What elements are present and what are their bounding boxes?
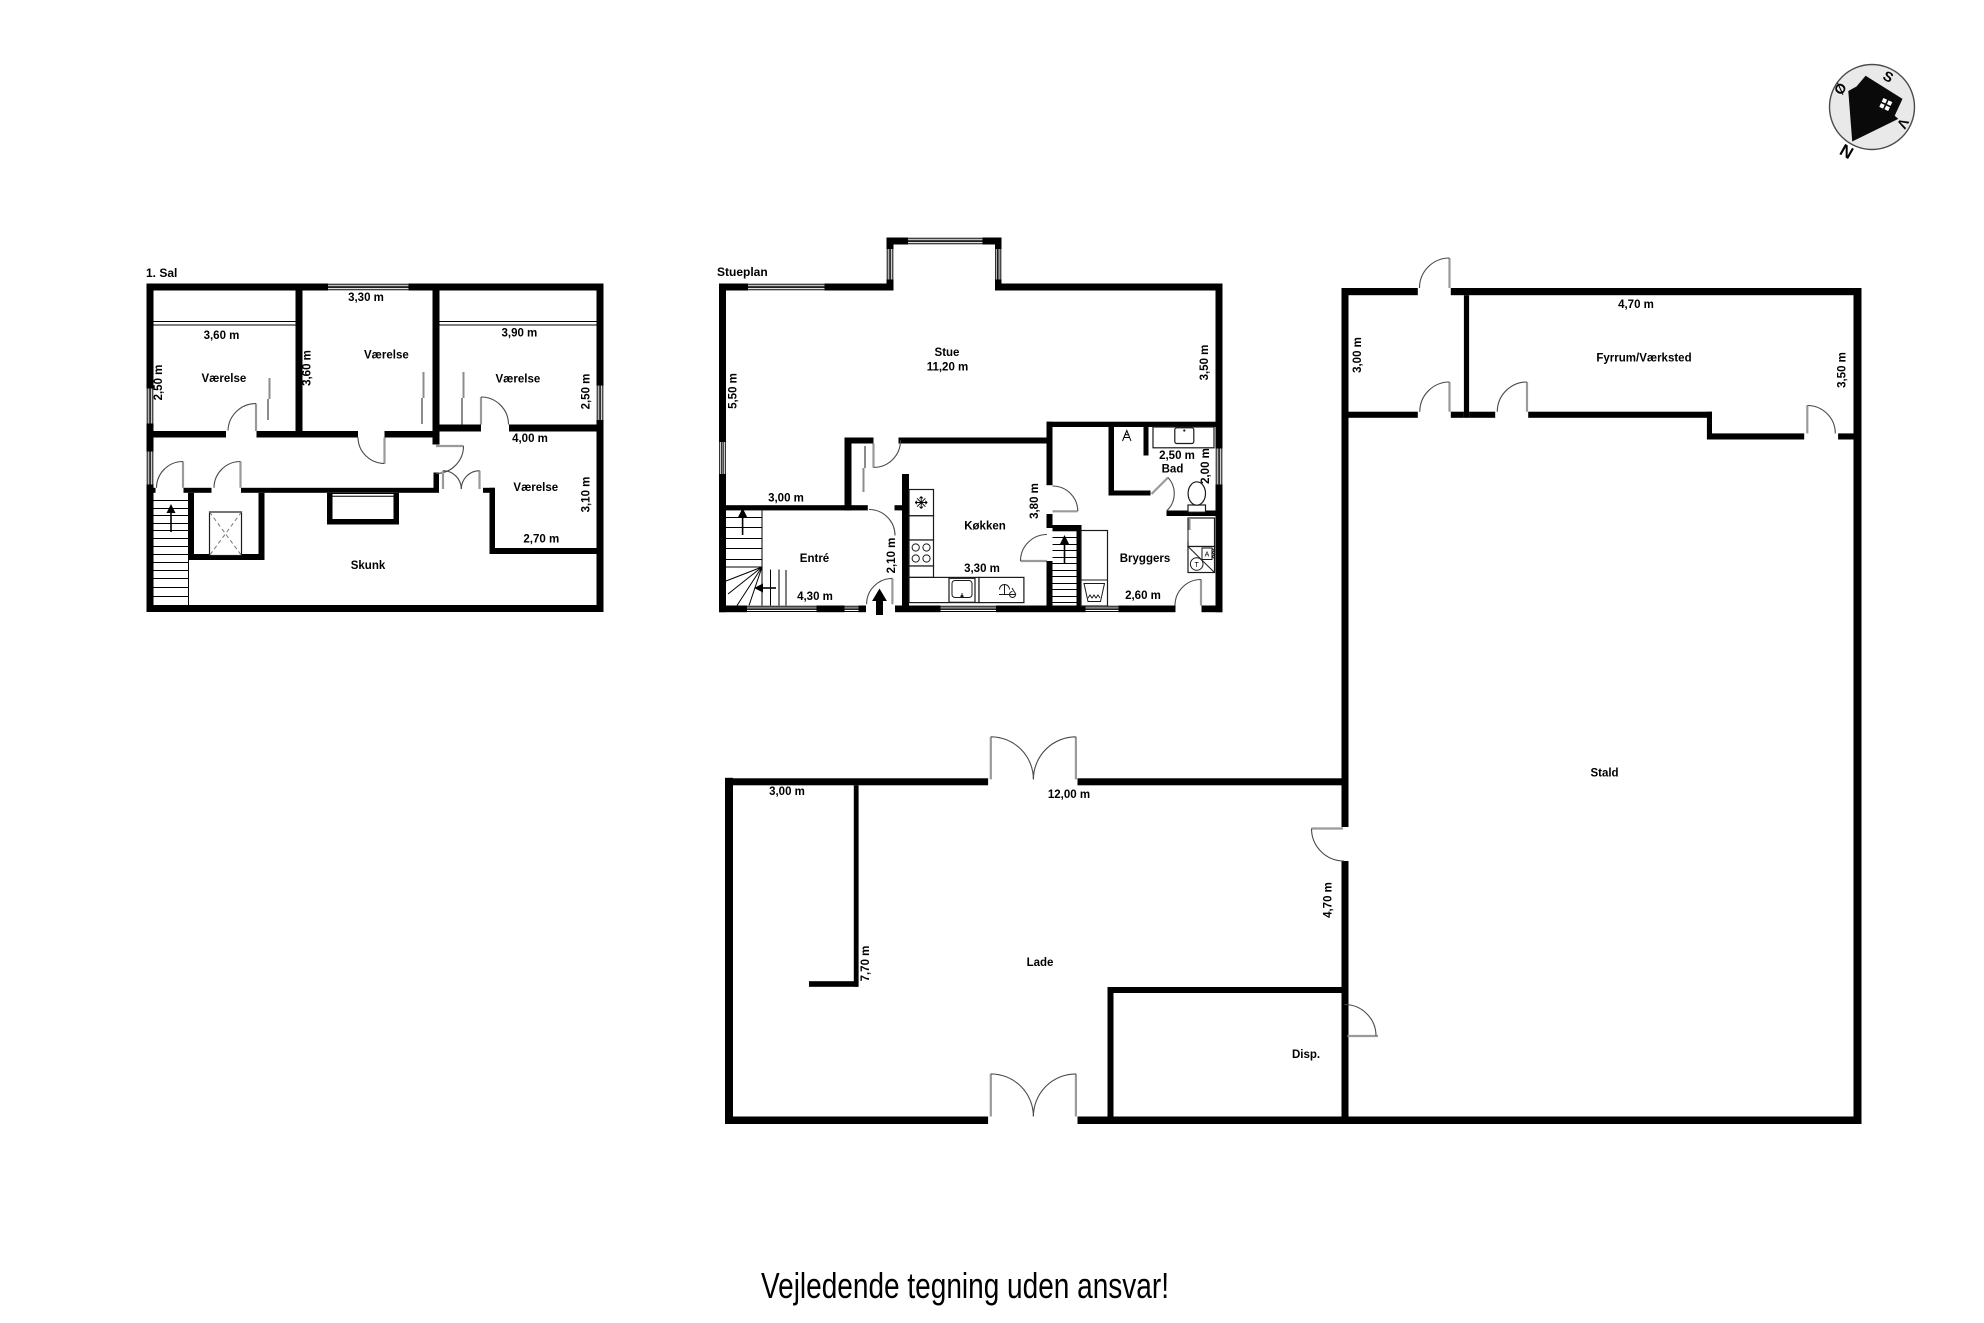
- svg-text:1. Sal: 1. Sal: [146, 266, 177, 280]
- svg-text:Bryggers: Bryggers: [1120, 553, 1171, 565]
- svg-text:T: T: [1195, 562, 1200, 569]
- svg-text:Disp.: Disp.: [1292, 1049, 1320, 1061]
- svg-text:2,70 m: 2,70 m: [523, 534, 559, 546]
- svg-text:3,00 m: 3,00 m: [1352, 337, 1364, 373]
- svg-text:Vejledende tegning uden ansvar: Vejledende tegning uden ansvar!: [761, 1265, 1169, 1306]
- svg-text:3,60 m: 3,60 m: [302, 350, 314, 386]
- svg-text:11,20 m: 11,20 m: [927, 362, 969, 374]
- svg-text:3,90 m: 3,90 m: [501, 328, 537, 340]
- svg-text:3,50 m: 3,50 m: [1199, 345, 1211, 381]
- svg-text:2,50 m: 2,50 m: [581, 374, 593, 410]
- svg-text:2,50 m: 2,50 m: [153, 365, 165, 401]
- svg-text:Lade: Lade: [1027, 957, 1054, 969]
- svg-text:4,70 m: 4,70 m: [1323, 882, 1335, 918]
- svg-text:Køkken: Køkken: [964, 521, 1006, 533]
- svg-text:2,60 m: 2,60 m: [1125, 590, 1161, 602]
- svg-text:Fyrrum/Værksted: Fyrrum/Værksted: [1596, 353, 1691, 365]
- svg-text:5,50 m: 5,50 m: [728, 373, 740, 409]
- svg-text:Entré: Entré: [800, 553, 829, 565]
- svg-text:3,00 m: 3,00 m: [768, 493, 804, 505]
- svg-text:3,30 m: 3,30 m: [964, 563, 1000, 575]
- svg-text:4,70 m: 4,70 m: [1618, 299, 1654, 311]
- svg-text:Værelse: Værelse: [513, 482, 558, 494]
- svg-text:2,10 m: 2,10 m: [886, 538, 898, 574]
- svg-text:4,30 m: 4,30 m: [797, 591, 833, 603]
- svg-text:3,60 m: 3,60 m: [204, 330, 240, 342]
- svg-text:7,70 m: 7,70 m: [860, 946, 872, 982]
- svg-text:4,00 m: 4,00 m: [512, 433, 548, 445]
- svg-text:3,80 m: 3,80 m: [1029, 483, 1041, 519]
- svg-text:2,50 m: 2,50 m: [1159, 450, 1195, 462]
- svg-text:A: A: [1205, 552, 1210, 559]
- svg-text:2,00 m: 2,00 m: [1200, 448, 1212, 484]
- svg-text:Stueplan: Stueplan: [717, 265, 768, 279]
- svg-text:12,00 m: 12,00 m: [1048, 789, 1090, 801]
- svg-text:Stald: Stald: [1590, 768, 1618, 780]
- svg-text:3,30 m: 3,30 m: [348, 292, 384, 304]
- svg-text:Værelse: Værelse: [496, 374, 541, 386]
- svg-text:Bad: Bad: [1162, 464, 1184, 476]
- svg-text:3,50 m: 3,50 m: [1837, 352, 1849, 388]
- svg-text:Værelse: Værelse: [202, 373, 247, 385]
- svg-text:Stue: Stue: [935, 347, 960, 359]
- svg-text:Værelse: Værelse: [364, 350, 409, 362]
- svg-text:3,10 m: 3,10 m: [581, 477, 593, 513]
- svg-text:3,00 m: 3,00 m: [769, 786, 805, 798]
- svg-text:Skunk: Skunk: [351, 560, 386, 572]
